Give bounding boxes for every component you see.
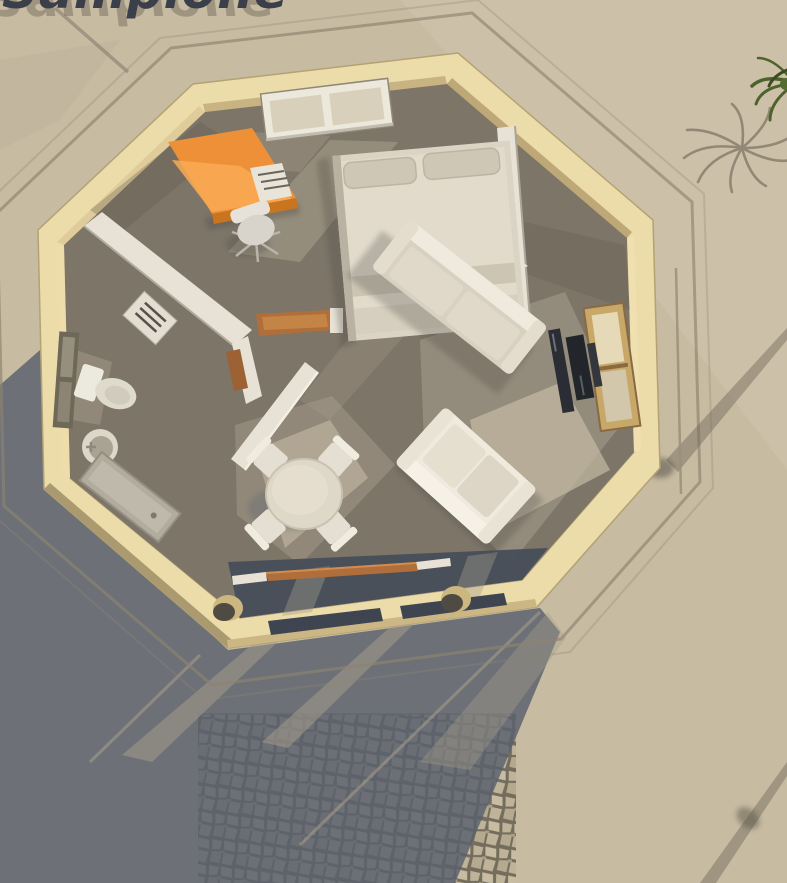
window-pane	[329, 87, 385, 125]
pillow	[422, 148, 500, 181]
page-title: Sampione	[2, 0, 289, 20]
porch-column	[441, 586, 471, 612]
window-pane	[269, 95, 325, 133]
render-viewport: Sampione	[0, 0, 787, 883]
dining-table-top	[272, 465, 328, 515]
pillow	[343, 157, 417, 189]
octagonal-house-render: Sampione	[0, 0, 787, 883]
porch-column	[213, 595, 243, 621]
